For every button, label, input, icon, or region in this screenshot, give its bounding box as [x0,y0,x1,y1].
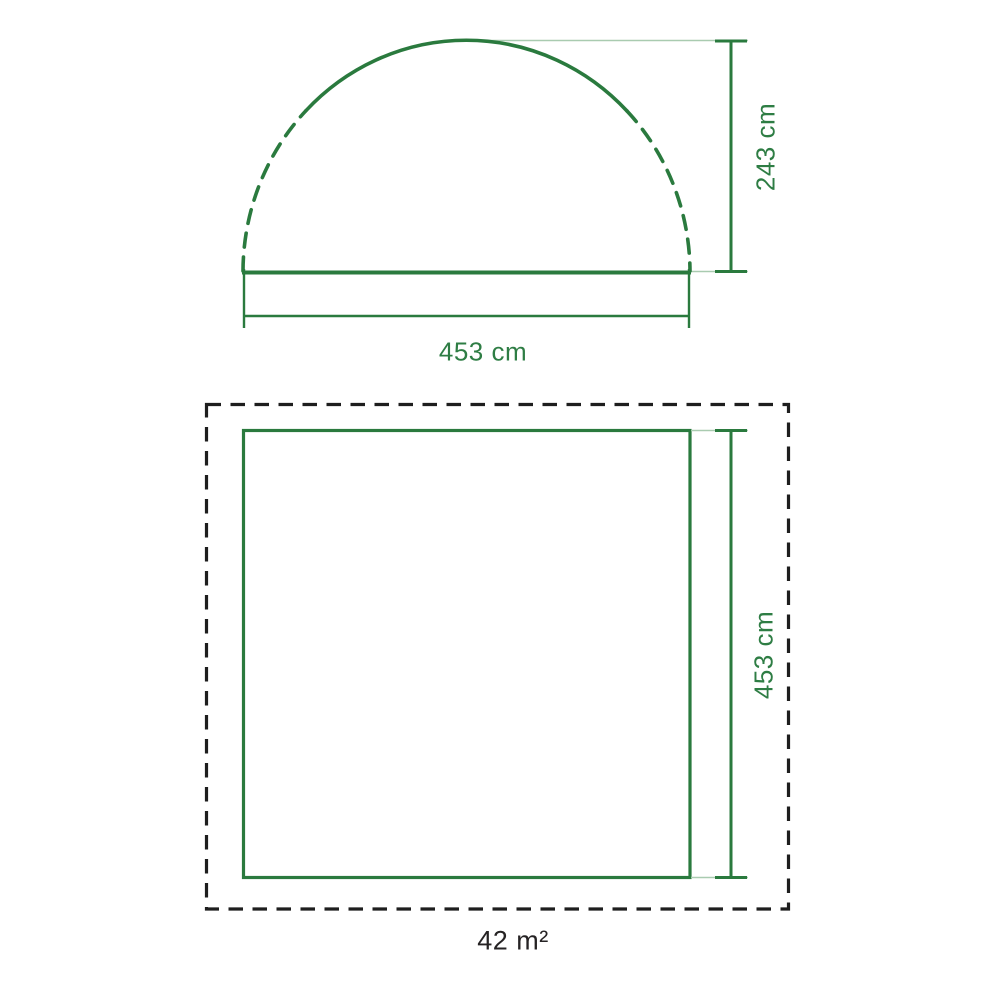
dome-height-label: 243 cm [751,103,782,191]
floor-outer-dashed-square [207,405,789,910]
dome-arc-top-solid [306,40,627,111]
tent-dimensions-diagram: 453 cm 243 cm 453 cm 42 m² [0,0,1000,1000]
side-view-dome [242,40,748,328]
floor-depth-label: 453 cm [749,611,780,699]
diagram-linework [0,0,1000,1000]
floor-area-label: 42 m² [477,926,549,957]
floor-plan [207,405,789,910]
dome-arc-right-dashed [627,111,690,271]
floor-inner-square [244,431,691,878]
dome-width-label: 453 cm [439,337,527,368]
dome-arc-left-dashed [243,111,306,271]
